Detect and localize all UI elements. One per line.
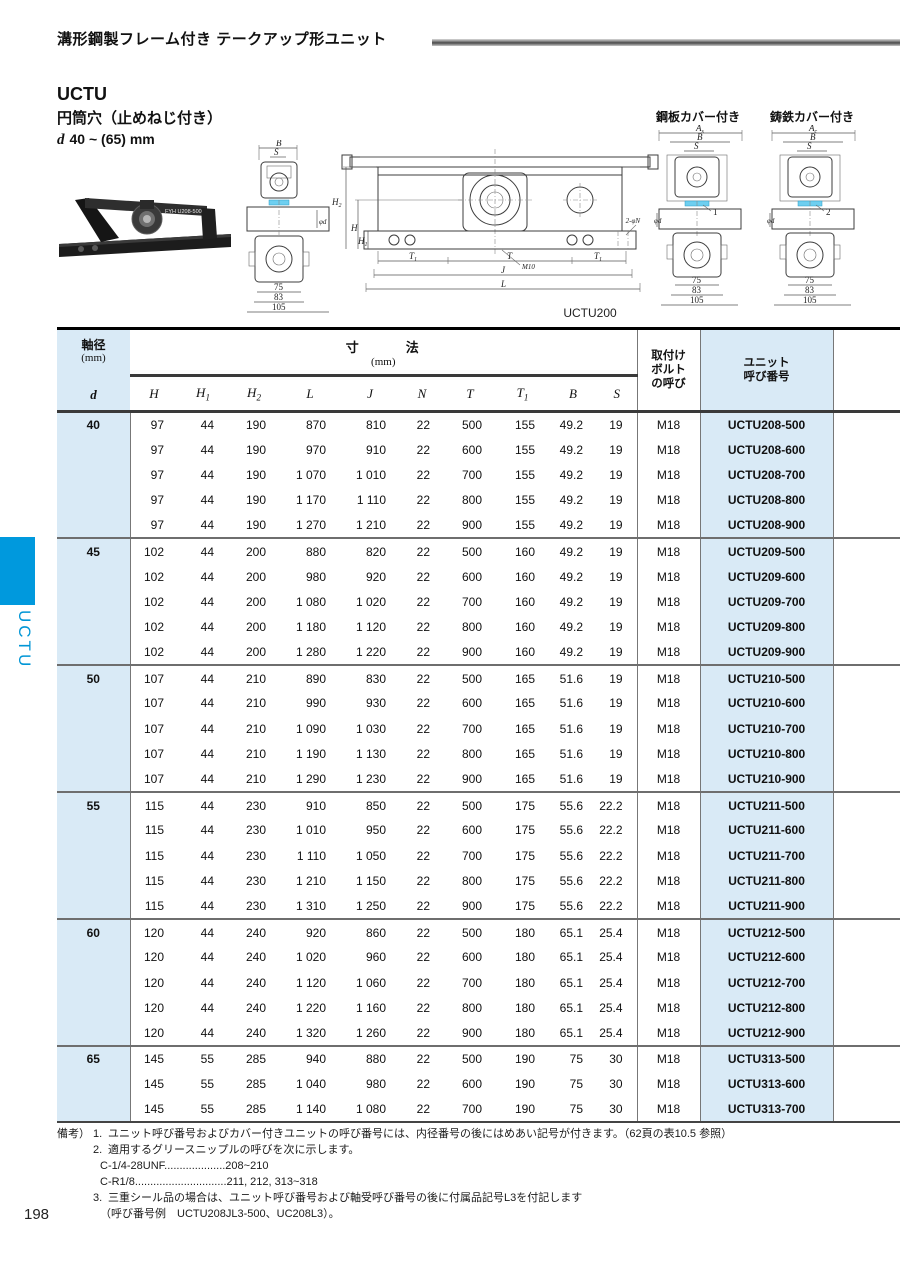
cell-dimension-value: 55.6: [549, 894, 597, 919]
product-photo: FYH U208-500: [55, 188, 235, 266]
cell-dimension-value: 44: [178, 564, 228, 589]
cell-dimension-value: 22: [400, 716, 444, 741]
cell-dimension-value: 19: [597, 437, 637, 462]
dim-T-label: T: [507, 251, 513, 261]
cell-dimension-value: 700: [444, 462, 496, 487]
cell-dimension-value: 230: [228, 792, 280, 817]
cell-dimension-value: 55: [178, 1072, 228, 1097]
cell-dimension-value: 500: [444, 792, 496, 817]
table-row: 45102442008808202250016049.219M18UCTU209…: [57, 538, 900, 563]
cell-spare: [833, 843, 900, 868]
cell-dimension-value: 880: [340, 1046, 400, 1071]
cell-dimension-value: 51.6: [549, 742, 597, 767]
cell-dimension-value: 44: [178, 767, 228, 792]
cell-dimension-value: 22: [400, 1097, 444, 1122]
dimension-table: 軸径 (mm) d 寸 法 (mm) 取付け ボルト の呼び: [57, 327, 900, 1123]
photo-marking: FYH U208-500: [165, 209, 202, 215]
cell-spare: [833, 564, 900, 589]
cell-dimension-value: 55.6: [549, 818, 597, 843]
cell-dimension-value: 107: [130, 742, 178, 767]
cell-dimension-value: 107: [130, 665, 178, 690]
note-3: 三重シール品の場合は、ユニット呼び番号および軸受呼び番号の後に付属品記号L3を付…: [108, 1190, 887, 1206]
cell-dimension-value: 240: [228, 945, 280, 970]
cell-dimension-value: 1 010: [340, 462, 400, 487]
cell-dimension-value: 1 270: [280, 513, 340, 538]
note-2a: C-1/4-28UNF....................208~210: [100, 1158, 887, 1174]
header-dim-H2: H2: [228, 376, 280, 412]
cell-bolt-size: M18: [637, 995, 700, 1020]
cell-dimension-value: 1 230: [340, 767, 400, 792]
cell-dimension-value: 25.4: [597, 970, 637, 995]
cell-spare: [833, 1097, 900, 1122]
cell-dimension-value: 1 290: [280, 767, 340, 792]
cell-dimension-value: 155: [496, 462, 549, 487]
dim-105-label: 105: [272, 302, 286, 312]
cell-unit-number: UCTU209-600: [700, 564, 833, 589]
cell-dimension-value: 155: [496, 412, 549, 437]
cell-dimension-value: 850: [340, 792, 400, 817]
cast-cover-drawing: Ac B S 2 φd 75 83 105: [766, 125, 861, 315]
cell-dimension-value: 1 110: [340, 488, 400, 513]
cell-dimension-value: 120: [130, 970, 178, 995]
cell-shaft-diameter: [57, 869, 130, 894]
cell-dimension-value: 700: [444, 843, 496, 868]
table-header-row: 軸径 (mm) d 寸 法 (mm) 取付け ボルト の呼び: [57, 329, 900, 376]
cell-dimension-value: 600: [444, 1072, 496, 1097]
cell-dimension-value: 145: [130, 1072, 178, 1097]
cell-shaft-diameter: [57, 767, 130, 792]
cell-dimension-value: 49.2: [549, 437, 597, 462]
cell-dimension-value: 1 210: [340, 513, 400, 538]
cell-spare: [833, 513, 900, 538]
cell-bolt-size: M18: [637, 462, 700, 487]
cell-spare: [833, 1046, 900, 1071]
cell-dimension-value: 115: [130, 843, 178, 868]
page-number: 198: [24, 1206, 49, 1223]
table-row: 102442001 2801 2202290016049.219M18UCTU2…: [57, 640, 900, 665]
cell-dimension-value: 900: [444, 894, 496, 919]
cell-dimension-value: 22: [400, 995, 444, 1020]
cell-dimension-value: 44: [178, 945, 228, 970]
dim-M10-label: M10: [521, 263, 535, 271]
cell-dimension-value: 970: [280, 437, 340, 462]
cell-dimension-value: 1 170: [280, 488, 340, 513]
cell-shaft-diameter: [57, 1097, 130, 1122]
cast-cover-label: 鋳鉄カバー付き: [770, 108, 854, 125]
cell-dimension-value: 180: [496, 1021, 549, 1046]
catalog-page: 溝形鋼製フレーム付き テークアップ形ユニット UCTU 円筒穴（止めねじ付き） …: [0, 0, 900, 1272]
cell-unit-number: UCTU211-700: [700, 843, 833, 868]
cell-dimension-value: 180: [496, 945, 549, 970]
table-row: 107442101 0901 0302270016551.619M18UCTU2…: [57, 716, 900, 741]
cell-dimension-value: 1 250: [340, 894, 400, 919]
cell-dimension-value: 870: [280, 412, 340, 437]
cell-dimension-value: 22: [400, 640, 444, 665]
cell-dimension-value: 240: [228, 970, 280, 995]
title-rule-bar: [432, 39, 900, 46]
cell-dimension-value: 75: [549, 1072, 597, 1097]
cell-dimension-value: 22: [400, 843, 444, 868]
cell-spare: [833, 412, 900, 437]
table-row: 55115442309108502250017555.622.2M18UCTU2…: [57, 792, 900, 817]
cell-dimension-value: 75: [549, 1097, 597, 1122]
header-dim-T: T: [444, 376, 496, 412]
cell-dimension-value: 44: [178, 716, 228, 741]
cell-unit-number: UCTU208-900: [700, 513, 833, 538]
cell-dimension-value: 990: [280, 691, 340, 716]
note-2b: C-R1/8..............................211,…: [100, 1174, 887, 1190]
cell-shaft-diameter: [57, 843, 130, 868]
cell-bolt-size: M18: [637, 1097, 700, 1122]
cell-dimension-value: 19: [597, 665, 637, 690]
dim-75-label: 75: [805, 275, 815, 285]
cell-dimension-value: 190: [228, 462, 280, 487]
cell-dimension-value: 165: [496, 665, 549, 690]
cell-dimension-value: 97: [130, 513, 178, 538]
cell-dimension-value: 49.2: [549, 412, 597, 437]
cell-dimension-value: 102: [130, 564, 178, 589]
cell-spare: [833, 488, 900, 513]
cell-dimension-value: 1 040: [280, 1072, 340, 1097]
cell-unit-number: UCTU313-700: [700, 1097, 833, 1122]
cell-dimension-value: 1 260: [340, 1021, 400, 1046]
cell-shaft-diameter: [57, 640, 130, 665]
cell-spare: [833, 995, 900, 1020]
cell-dimension-value: 44: [178, 615, 228, 640]
cell-dimension-value: 22: [400, 538, 444, 563]
drawing-caption: UCTU200: [530, 306, 650, 320]
cell-dimension-value: 600: [444, 945, 496, 970]
steel-cover-drawing: As B S 1 φd 75 83 105: [653, 125, 748, 315]
bore-type: 円筒穴（止めねじ付き）: [57, 107, 222, 128]
remarks: 備考） 1. ユニット呼び番号およびカバー付きユニットの呼び番号には、内径番号の…: [57, 1126, 887, 1222]
cell-dimension-value: 700: [444, 970, 496, 995]
cell-dimension-value: 65.1: [549, 995, 597, 1020]
cell-dimension-value: 120: [130, 995, 178, 1020]
cell-dimension-value: 25.4: [597, 945, 637, 970]
cell-dimension-value: 500: [444, 412, 496, 437]
table-row: 102442009809202260016049.219M18UCTU209-6…: [57, 564, 900, 589]
cell-dimension-value: 102: [130, 589, 178, 614]
cell-dimension-value: 175: [496, 843, 549, 868]
cell-dimension-value: 44: [178, 1021, 228, 1046]
table-row: 102442001 1801 1202280016049.219M18UCTU2…: [57, 615, 900, 640]
cell-dimension-value: 910: [340, 437, 400, 462]
cell-dimension-value: 240: [228, 919, 280, 944]
cell-dimension-value: 19: [597, 412, 637, 437]
main-view-drawing: H2 H H1 2-φN M10 T1 T T1 J L: [330, 143, 670, 313]
table-row: 97441901 2701 2102290015549.219M18UCTU20…: [57, 513, 900, 538]
cell-dimension-value: 1 020: [280, 945, 340, 970]
cell-shaft-diameter: 40: [57, 412, 130, 437]
cell-dimension-value: 44: [178, 894, 228, 919]
cell-dimension-value: 44: [178, 665, 228, 690]
table-row: 115442301 3101 2502290017555.622.2M18UCT…: [57, 894, 900, 919]
cell-dimension-value: 210: [228, 767, 280, 792]
cell-bolt-size: M18: [637, 437, 700, 462]
cell-spare: [833, 640, 900, 665]
table-row: 145552851 040980226001907530M18UCTU313-6…: [57, 1072, 900, 1097]
table-row: 107442101 2901 2302290016551.619M18UCTU2…: [57, 767, 900, 792]
cell-dimension-value: 22: [400, 894, 444, 919]
cell-spare: [833, 767, 900, 792]
cell-dimension-value: 800: [444, 488, 496, 513]
cell-dimension-value: 1 150: [340, 869, 400, 894]
dim-phid-label: φd: [767, 217, 775, 225]
cell-dimension-value: 145: [130, 1046, 178, 1071]
cell-dimension-value: 44: [178, 843, 228, 868]
cell-dimension-value: 285: [228, 1046, 280, 1071]
cell-unit-number: UCTU211-600: [700, 818, 833, 843]
cell-dimension-value: 600: [444, 691, 496, 716]
cell-dimension-value: 19: [597, 767, 637, 792]
cell-dimension-value: 1 090: [280, 716, 340, 741]
cell-dimension-value: 190: [228, 488, 280, 513]
cell-shaft-diameter: 50: [57, 665, 130, 690]
cell-dimension-value: 22.2: [597, 869, 637, 894]
cell-dimension-value: 97: [130, 412, 178, 437]
table-row: 97441901 1701 1102280015549.219M18UCTU20…: [57, 488, 900, 513]
cell-dimension-value: 980: [340, 1072, 400, 1097]
cell-dimension-value: 1 140: [280, 1097, 340, 1122]
cell-dimension-value: 19: [597, 716, 637, 741]
cell-dimension-value: 200: [228, 640, 280, 665]
header-mounting-bolt: 取付け ボルト の呼び: [637, 329, 700, 412]
cell-bolt-size: M18: [637, 970, 700, 995]
cell-dimension-value: 900: [444, 513, 496, 538]
cell-dimension-value: 44: [178, 462, 228, 487]
cell-bolt-size: M18: [637, 1046, 700, 1071]
cell-unit-number: UCTU209-700: [700, 589, 833, 614]
cell-bolt-size: M18: [637, 665, 700, 690]
cell-dimension-value: 210: [228, 691, 280, 716]
dim-S-label: S: [807, 141, 812, 151]
cell-dimension-value: 230: [228, 894, 280, 919]
cell-bolt-size: M18: [637, 589, 700, 614]
dim-75-label: 75: [274, 282, 284, 292]
cell-dimension-value: 200: [228, 615, 280, 640]
table-row: 97441901 0701 0102270015549.219M18UCTU20…: [57, 462, 900, 487]
cell-dimension-value: 22: [400, 513, 444, 538]
cell-dimension-value: 22: [400, 945, 444, 970]
cell-shaft-diameter: [57, 818, 130, 843]
cell-spare: [833, 945, 900, 970]
cell-dimension-value: 1 310: [280, 894, 340, 919]
cell-shaft-diameter: 65: [57, 1046, 130, 1071]
cell-dimension-value: 25.4: [597, 919, 637, 944]
cell-bolt-size: M18: [637, 691, 700, 716]
cell-dimension-value: 1 210: [280, 869, 340, 894]
cell-bolt-size: M18: [637, 894, 700, 919]
cell-shaft-diameter: [57, 716, 130, 741]
dim-83-label: 83: [274, 292, 284, 302]
cell-bolt-size: M18: [637, 843, 700, 868]
cell-dimension-value: 600: [444, 818, 496, 843]
cell-bolt-size: M18: [637, 919, 700, 944]
cell-bolt-size: M18: [637, 488, 700, 513]
remarks-label: 備考）: [57, 1126, 93, 1142]
table-row: 97441909709102260015549.219M18UCTU208-60…: [57, 437, 900, 462]
table-row: 107442109909302260016551.619M18UCTU210-6…: [57, 691, 900, 716]
cell-dimension-value: 155: [496, 488, 549, 513]
cell-dimension-value: 830: [340, 665, 400, 690]
cell-dimension-value: 240: [228, 1021, 280, 1046]
cell-unit-number: UCTU212-900: [700, 1021, 833, 1046]
table-row: 145552851 1401 080227001907530M18UCTU313…: [57, 1097, 900, 1122]
cell-unit-number: UCTU211-900: [700, 894, 833, 919]
dim-H1-label: H1: [357, 236, 368, 248]
header-dim-H1: H1: [178, 376, 228, 412]
sidebar-tab-label: UCTU: [14, 610, 34, 669]
cell-spare: [833, 716, 900, 741]
cell-dimension-value: 55.6: [549, 869, 597, 894]
cell-dimension-value: 19: [597, 640, 637, 665]
cell-dimension-value: 200: [228, 589, 280, 614]
table-row: 107442101 1901 1302280016551.619M18UCTU2…: [57, 742, 900, 767]
cell-dimension-value: 200: [228, 564, 280, 589]
cell-unit-number: UCTU208-700: [700, 462, 833, 487]
cell-spare: [833, 869, 900, 894]
dim-L-label: L: [500, 279, 506, 289]
cell-dimension-value: 145: [130, 1097, 178, 1122]
cell-dimension-value: 97: [130, 437, 178, 462]
cell-dimension-value: 22: [400, 412, 444, 437]
cell-dimension-value: 180: [496, 919, 549, 944]
cell-shaft-diameter: 45: [57, 538, 130, 563]
cell-dimension-value: 165: [496, 716, 549, 741]
cell-unit-number: UCTU212-800: [700, 995, 833, 1020]
cell-dimension-value: 22.2: [597, 894, 637, 919]
cell-dimension-value: 860: [340, 919, 400, 944]
cell-dimension-value: 25.4: [597, 1021, 637, 1046]
cell-bolt-size: M18: [637, 538, 700, 563]
cell-dimension-value: 160: [496, 538, 549, 563]
cell-spare: [833, 665, 900, 690]
cell-dimension-value: 19: [597, 589, 637, 614]
cell-dimension-value: 160: [496, 564, 549, 589]
table-row: 4097441908708102250015549.219M18UCTU208-…: [57, 412, 900, 437]
cell-dimension-value: 19: [597, 488, 637, 513]
cell-dimension-value: 49.2: [549, 538, 597, 563]
cell-dimension-value: 44: [178, 995, 228, 1020]
cell-spare: [833, 1072, 900, 1097]
cell-dimension-value: 22: [400, 818, 444, 843]
cell-shaft-diameter: [57, 995, 130, 1020]
cell-dimension-value: 285: [228, 1097, 280, 1122]
cell-dimension-value: 44: [178, 919, 228, 944]
cell-dimension-value: 230: [228, 869, 280, 894]
cell-dimension-value: 102: [130, 615, 178, 640]
cell-unit-number: UCTU211-800: [700, 869, 833, 894]
cell-dimension-value: 160: [496, 615, 549, 640]
cell-dimension-value: 51.6: [549, 665, 597, 690]
cell-dimension-value: 120: [130, 1021, 178, 1046]
sidebar-tab: [0, 537, 35, 605]
cell-dimension-value: 44: [178, 437, 228, 462]
cell-dimension-value: 190: [496, 1097, 549, 1122]
cell-dimension-value: 930: [340, 691, 400, 716]
cell-dimension-value: 44: [178, 412, 228, 437]
cell-dimension-value: 160: [496, 589, 549, 614]
cell-dimension-value: 115: [130, 792, 178, 817]
cell-dimension-value: 165: [496, 742, 549, 767]
cell-dimension-value: 1 180: [280, 615, 340, 640]
cell-dimension-value: 285: [228, 1072, 280, 1097]
table-row: 120442401 1201 0602270018065.125.4M18UCT…: [57, 970, 900, 995]
cell-dimension-value: 115: [130, 894, 178, 919]
cell-shaft-diameter: [57, 513, 130, 538]
cell-unit-number: UCTU211-500: [700, 792, 833, 817]
cell-unit-number: UCTU212-600: [700, 945, 833, 970]
cell-shaft-diameter: [57, 945, 130, 970]
cell-dimension-value: 44: [178, 589, 228, 614]
cell-dimension-value: 22.2: [597, 792, 637, 817]
cell-dimension-value: 102: [130, 538, 178, 563]
cell-dimension-value: 65.1: [549, 970, 597, 995]
header-dim-B: B: [549, 376, 597, 412]
cell-dimension-value: 1 070: [280, 462, 340, 487]
cell-dimension-value: 30: [597, 1072, 637, 1097]
table-row: 120442401 0209602260018065.125.4M18UCTU2…: [57, 945, 900, 970]
cell-dimension-value: 1 130: [340, 742, 400, 767]
cell-dimension-value: 22: [400, 437, 444, 462]
cell-dimension-value: 30: [597, 1046, 637, 1071]
cell-dimension-value: 1 220: [340, 640, 400, 665]
cell-dimension-value: 19: [597, 564, 637, 589]
cell-shaft-diameter: [57, 894, 130, 919]
cell-unit-number: UCTU313-500: [700, 1046, 833, 1071]
cell-dimension-value: 800: [444, 615, 496, 640]
dim-H-label: H: [350, 223, 358, 233]
cell-bolt-size: M18: [637, 513, 700, 538]
cell-shaft-diameter: [57, 970, 130, 995]
cell-dimension-value: 210: [228, 742, 280, 767]
cell-dimension-value: 180: [496, 970, 549, 995]
cell-dimension-value: 22: [400, 1072, 444, 1097]
header-dim-S: S: [597, 376, 637, 412]
cell-dimension-value: 49.2: [549, 564, 597, 589]
cell-dimension-value: 800: [444, 995, 496, 1020]
cell-dimension-value: 155: [496, 437, 549, 462]
cell-dimension-value: 180: [496, 995, 549, 1020]
cell-dimension-value: 22: [400, 589, 444, 614]
cell-bolt-size: M18: [637, 792, 700, 817]
cell-dimension-value: 190: [228, 412, 280, 437]
cell-spare: [833, 970, 900, 995]
cell-dimension-value: 920: [340, 564, 400, 589]
cell-shaft-diameter: [57, 437, 130, 462]
cell-dimension-value: 22: [400, 742, 444, 767]
cell-dimension-value: 97: [130, 488, 178, 513]
table-row: 120442401 2201 1602280018065.125.4M18UCT…: [57, 995, 900, 1020]
cell-shaft-diameter: [57, 488, 130, 513]
cell-dimension-value: 500: [444, 665, 496, 690]
cell-bolt-size: M18: [637, 869, 700, 894]
header-shaft-diameter: 軸径 (mm) d: [57, 329, 130, 412]
dim-S-label: S: [694, 141, 699, 151]
header-dimensions-group: 寸 法 (mm): [130, 329, 637, 376]
cell-dimension-value: 1 080: [340, 1097, 400, 1122]
cell-dimension-value: 22: [400, 488, 444, 513]
cell-dimension-value: 25.4: [597, 995, 637, 1020]
cell-dimension-value: 44: [178, 970, 228, 995]
cell-dimension-value: 22: [400, 970, 444, 995]
note-number: 3.: [93, 1190, 108, 1206]
cell-dimension-value: 49.2: [549, 462, 597, 487]
dim-H2-label: H2: [331, 197, 342, 209]
cell-dimension-value: 1 120: [340, 615, 400, 640]
cell-dimension-value: 890: [280, 665, 340, 690]
